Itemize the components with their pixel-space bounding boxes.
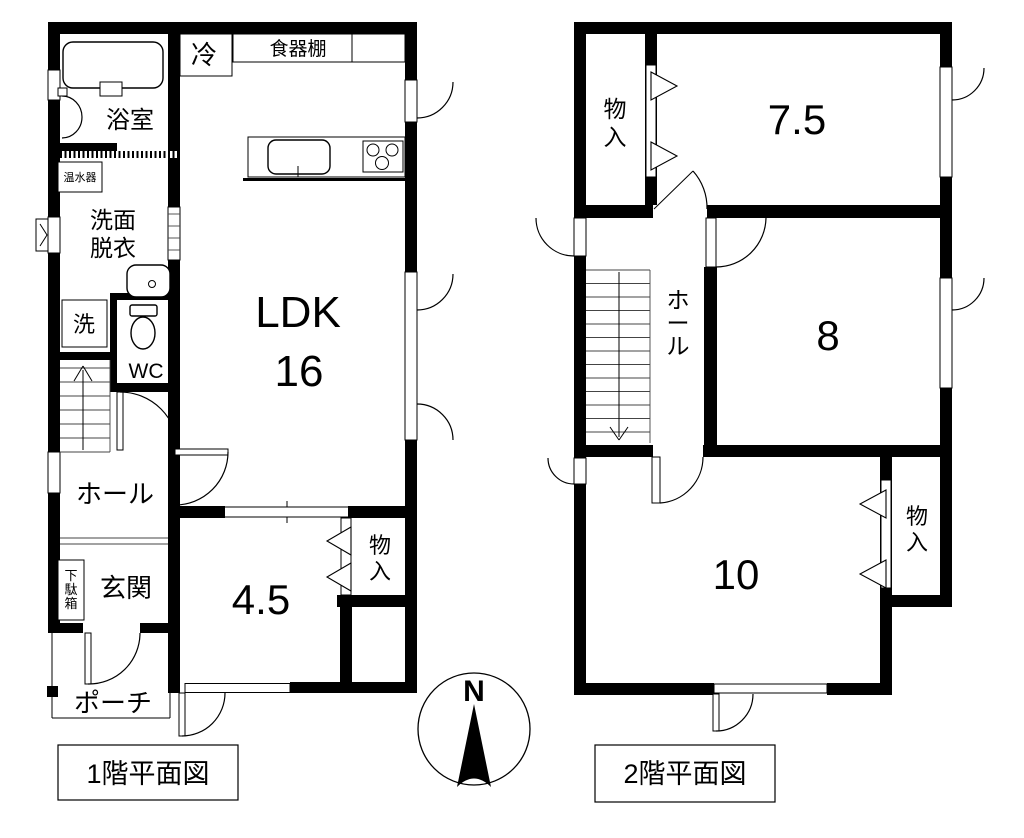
storage1-folding-door (327, 518, 351, 595)
washroom-window-sill (36, 219, 48, 251)
room-label-storage-top: 物 入 (604, 96, 627, 150)
ldk-east-door-opening (405, 80, 417, 122)
room-label-ldk-size: 16 (275, 347, 324, 396)
porch-pillar (47, 686, 58, 697)
room45-terrace-door (179, 682, 290, 736)
toilet-icon (130, 305, 157, 349)
room-label-10: 10 (713, 551, 760, 598)
floor1-caption: 1階平面図 (86, 759, 209, 789)
room-label-8: 8 (816, 312, 839, 359)
bath-sliding-door-hatch (60, 151, 177, 158)
floor2-plan: 物 入 7.5 ホ ー ル 8 10 物 入 2階平面図 (536, 22, 984, 802)
svg-text:入: 入 (906, 530, 928, 555)
floor2-walls (574, 22, 952, 695)
ldk-east-door-swing (417, 82, 453, 440)
washroom-window (48, 217, 60, 253)
svg-text:入: 入 (369, 559, 391, 584)
room-label-washroom-1: 洗面 (90, 207, 136, 233)
bath-door (58, 88, 82, 138)
front-door (83, 623, 140, 684)
room-label-75: 7.5 (768, 96, 826, 143)
room-label-storage-1f: 物 入 (369, 533, 391, 584)
room8-window (940, 278, 952, 388)
washroom-pocket-door (168, 207, 180, 260)
room8-window-swing (952, 278, 984, 310)
room-label-bath: 浴室 (106, 107, 154, 134)
compass-needle-icon (457, 704, 491, 787)
svg-text:下: 下 (64, 568, 77, 583)
room-label-hall-1f: ホール (76, 479, 154, 509)
room-label-ldk: LDK (255, 288, 341, 337)
hall2-window-swing (536, 218, 574, 256)
room75-window (940, 67, 952, 177)
room8-door (706, 218, 766, 267)
room-label-shoe-cabinet: 下 駄 箱 (64, 568, 77, 611)
svg-text:入: 入 (604, 124, 627, 150)
room10-terrace-door (713, 683, 827, 731)
hall2-window (574, 218, 586, 256)
svg-text:物: 物 (906, 504, 928, 529)
room75-door (653, 171, 707, 218)
storage-top-folding-door (646, 65, 677, 177)
room10-door (652, 445, 703, 503)
kitchen-counter-icon (243, 137, 405, 181)
room-label-cupboard: 食器棚 (269, 38, 326, 60)
compass-north-label: N (463, 675, 485, 708)
room-label-entrance: 玄関 (100, 573, 152, 603)
room-label-laundry: 洗 (73, 312, 95, 337)
hall-window (48, 452, 60, 493)
room-label-water-heater: 温水器 (64, 171, 97, 184)
floor2-caption: 2階平面図 (623, 759, 746, 789)
compass-rose: N (418, 673, 530, 787)
room-label-fridge: 冷 (191, 40, 217, 70)
svg-text:ル: ル (667, 333, 690, 359)
stairs-up-icon (60, 360, 110, 452)
stairs-down-icon (586, 270, 650, 443)
room10-window (574, 458, 586, 484)
washbasin-icon (127, 265, 170, 297)
room-label-porch: ポーチ (74, 688, 152, 718)
svg-text:箱: 箱 (64, 596, 77, 611)
ldk-45-sliding-door (225, 501, 348, 523)
floor-plan-page: 浴室 冷 食器棚 温水器 洗面 脱衣 洗 WC LDK 16 ホール 玄関 下 … (0, 0, 1024, 838)
room75-window-swing (952, 68, 984, 100)
entrance-step-lines (60, 538, 168, 544)
bathtub-icon (63, 42, 163, 96)
svg-text:物: 物 (604, 96, 627, 122)
svg-text:駄: 駄 (64, 582, 77, 597)
room-label-storage-bottom: 物 入 (906, 504, 928, 555)
room-label-wc: WC (129, 360, 164, 383)
storage-bottom-folding-door (860, 480, 891, 588)
room-label-hall-2f: ホ ー ル (667, 287, 690, 359)
room10-window-swing (548, 458, 574, 484)
hall-ldk-door (175, 449, 228, 505)
room-label-45: 4.5 (232, 576, 290, 623)
svg-text:物: 物 (369, 533, 391, 558)
ldk-east-window (405, 272, 417, 440)
floor1-plan: 浴室 冷 食器棚 温水器 洗面 脱衣 洗 WC LDK 16 ホール 玄関 下 … (36, 22, 453, 800)
floor-plan-image: 浴室 冷 食器棚 温水器 洗面 脱衣 洗 WC LDK 16 ホール 玄関 下 … (0, 0, 1024, 838)
room-label-washroom-2: 脱衣 (90, 235, 136, 261)
